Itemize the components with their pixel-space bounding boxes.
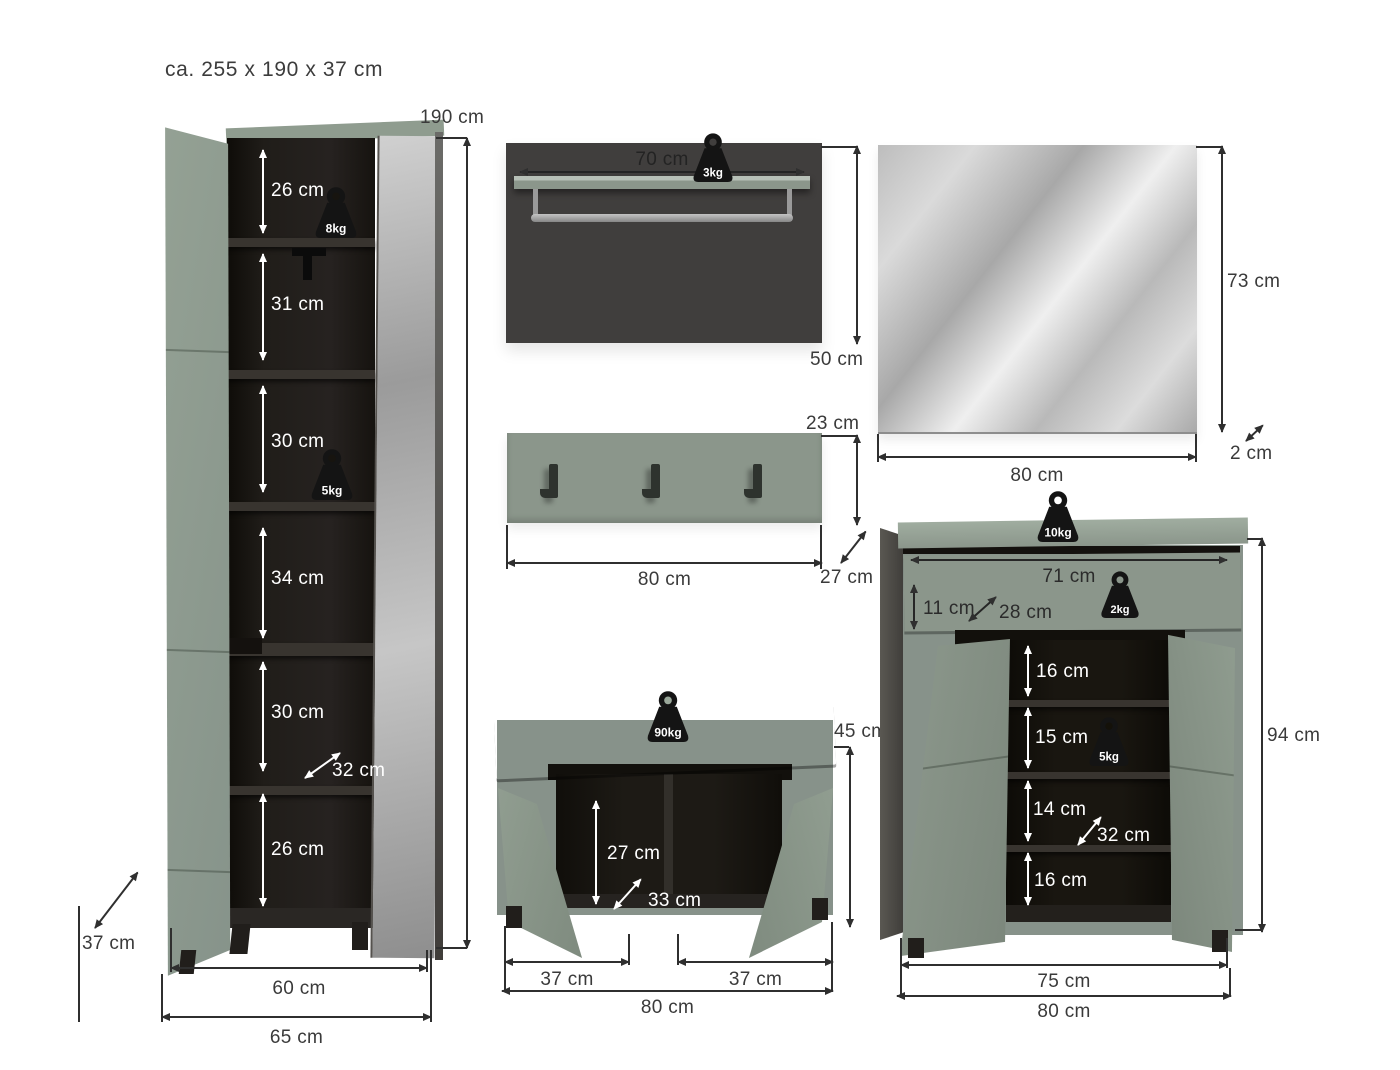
cabinet-inner-width-label: 75 cm bbox=[901, 972, 1227, 993]
cabinet-shelf1-arrow bbox=[1027, 646, 1029, 696]
shelf-width-label: 70 cm bbox=[520, 150, 804, 171]
wardrobe-depth-label: 37 cm bbox=[82, 934, 135, 955]
wardrobe-foot bbox=[352, 922, 368, 950]
mirror-depth-label: 2 cm bbox=[1230, 444, 1272, 465]
cabinet-shelf4-label: 16 cm bbox=[1034, 871, 1087, 892]
wardrobe-c6-arrow bbox=[262, 794, 264, 906]
drawer-depth-label: 28 cm bbox=[999, 603, 1052, 624]
cabinet-shelf2-arrow bbox=[1027, 708, 1029, 768]
bench-right-width-label: 37 cm bbox=[678, 970, 833, 991]
mirror bbox=[878, 145, 1197, 434]
bench-foot bbox=[506, 906, 522, 928]
wardrobe-c2-label: 31 cm bbox=[271, 295, 324, 316]
cabinet-foot bbox=[908, 938, 924, 958]
weight-5kg-icon: 5kg bbox=[308, 448, 356, 504]
weight-90kg-icon: 90kg bbox=[644, 690, 692, 746]
hanging-rail bbox=[531, 214, 793, 222]
svg-text:8kg: 8kg bbox=[326, 221, 347, 235]
bench-left-width-line bbox=[505, 961, 629, 963]
mirror-width-line bbox=[878, 456, 1196, 458]
wall-shelf-board bbox=[514, 176, 810, 189]
coat-hook-icon bbox=[540, 489, 551, 498]
wardrobe-c5-label: 30 cm bbox=[271, 703, 324, 724]
door-groove bbox=[163, 649, 233, 653]
svg-text:90kg: 90kg bbox=[654, 725, 681, 739]
coat-rack-width-line bbox=[507, 562, 822, 564]
svg-text:5kg: 5kg bbox=[322, 483, 343, 497]
bench-height-line bbox=[849, 747, 851, 927]
wardrobe-mirror-door bbox=[370, 136, 441, 959]
wardrobe-c2-arrow bbox=[262, 254, 264, 360]
wardrobe-height-label: 190 cm bbox=[420, 108, 484, 129]
bench-inner-height-label: 27 cm bbox=[607, 844, 660, 865]
door-groove bbox=[163, 869, 233, 873]
cabinet-side-panel bbox=[880, 528, 905, 940]
wardrobe-c6-label: 26 cm bbox=[271, 840, 324, 861]
bench-divider bbox=[664, 774, 673, 908]
mirror-height-label: 73 cm bbox=[1227, 272, 1280, 293]
wardrobe-hook-icon bbox=[303, 254, 312, 280]
wardrobe-foot bbox=[229, 924, 250, 954]
wardrobe-door-width-label: 60 cm bbox=[171, 979, 427, 1000]
cabinet-inner-depth-label: 32 cm bbox=[1097, 826, 1150, 847]
coat-rack-depth-label: 27 cm bbox=[820, 568, 873, 589]
cabinet-shelf4-arrow bbox=[1027, 853, 1029, 905]
bench-width-line bbox=[502, 990, 833, 992]
cabinet-shelf3-label: 14 cm bbox=[1033, 800, 1086, 821]
wall-panel bbox=[506, 143, 822, 343]
bench-right-width-line bbox=[678, 961, 833, 963]
furniture-dimension-diagram: ca. 255 x 190 x 37 cm bbox=[0, 0, 1400, 1070]
page-title: ca. 255 x 190 x 37 cm bbox=[165, 58, 383, 82]
bench-inner-height-arrow bbox=[595, 801, 597, 904]
bench-interior bbox=[556, 774, 782, 908]
weight-2kg-icon: 2kg bbox=[1098, 570, 1142, 622]
bench-inner-depth-label: 33 cm bbox=[648, 891, 701, 912]
bench-foot bbox=[812, 898, 828, 920]
wardrobe-shelf-board bbox=[227, 786, 375, 795]
coat-rack-width-label: 80 cm bbox=[507, 570, 822, 591]
svg-text:10kg: 10kg bbox=[1044, 525, 1071, 539]
wardrobe-side-edge bbox=[435, 132, 443, 960]
coat-rack-height-label: 23 cm bbox=[806, 414, 859, 435]
wardrobe-c5-arrow bbox=[262, 662, 264, 771]
drawer-width-label: 71 cm bbox=[911, 567, 1227, 588]
wardrobe-c1-arrow bbox=[262, 150, 264, 233]
svg-text:2kg: 2kg bbox=[1111, 604, 1130, 616]
wardrobe-shelf-board bbox=[227, 370, 375, 379]
panel-height-line bbox=[856, 146, 858, 344]
door-groove bbox=[163, 349, 233, 353]
cabinet-shelf1-label: 16 cm bbox=[1036, 662, 1089, 683]
wardrobe-c4-label: 34 cm bbox=[271, 569, 324, 590]
cabinet-height-label: 94 cm bbox=[1267, 726, 1320, 747]
cabinet-shelf3-arrow bbox=[1027, 781, 1029, 841]
cabinet-right-door bbox=[1165, 628, 1240, 958]
door-groove bbox=[1165, 765, 1240, 777]
drawer-height-arrow bbox=[913, 585, 915, 629]
coat-hook-icon bbox=[744, 489, 755, 498]
wardrobe-total-width-line bbox=[162, 1016, 431, 1018]
wardrobe-c4-arrow bbox=[262, 528, 264, 638]
wardrobe-foot bbox=[179, 950, 197, 974]
wardrobe-open-door bbox=[163, 124, 233, 980]
wardrobe-c3-arrow bbox=[262, 386, 264, 492]
mirror-height-line bbox=[1221, 146, 1223, 432]
bench-height-label: 45 cm bbox=[834, 722, 887, 743]
drawer-width-line bbox=[911, 559, 1227, 561]
weight-5kg-shelf-icon: 5kg bbox=[1086, 716, 1132, 770]
cabinet-height-line bbox=[1261, 538, 1263, 932]
wardrobe-inner-depth-label: 32 cm bbox=[332, 761, 385, 782]
svg-text:3kg: 3kg bbox=[703, 168, 723, 180]
weight-8kg-icon: 8kg bbox=[312, 186, 360, 242]
wardrobe-total-width-label: 65 cm bbox=[162, 1028, 431, 1049]
coat-hook-icon bbox=[642, 489, 653, 498]
wardrobe-door-width-line bbox=[171, 967, 427, 969]
wardrobe-interior bbox=[227, 138, 375, 928]
svg-text:5kg: 5kg bbox=[1099, 752, 1119, 764]
cabinet-shelf2-label: 15 cm bbox=[1035, 728, 1088, 749]
bench-left-width-label: 37 cm bbox=[505, 970, 629, 991]
cabinet-width-label: 80 cm bbox=[897, 1002, 1231, 1023]
dim-extension bbox=[430, 950, 432, 1022]
cabinet-shelf-board bbox=[1006, 700, 1171, 707]
coat-rack-height-line bbox=[856, 435, 858, 525]
mirror-width-label: 80 cm bbox=[878, 466, 1196, 487]
bench-width-label: 80 cm bbox=[502, 998, 833, 1019]
cabinet-bottom-board bbox=[1006, 905, 1171, 922]
weight-10kg-icon: 10kg bbox=[1034, 490, 1082, 546]
shelf-width-line bbox=[520, 171, 804, 173]
weight-3kg-icon: 3kg bbox=[690, 132, 736, 186]
cabinet-inner-width-line bbox=[901, 964, 1227, 966]
cabinet-shelf-board bbox=[1006, 772, 1171, 779]
cabinet-width-line bbox=[897, 995, 1231, 997]
panel-height-label: 50 cm bbox=[810, 350, 863, 371]
wardrobe-height-line bbox=[466, 138, 468, 948]
dim-extension bbox=[78, 906, 80, 1022]
